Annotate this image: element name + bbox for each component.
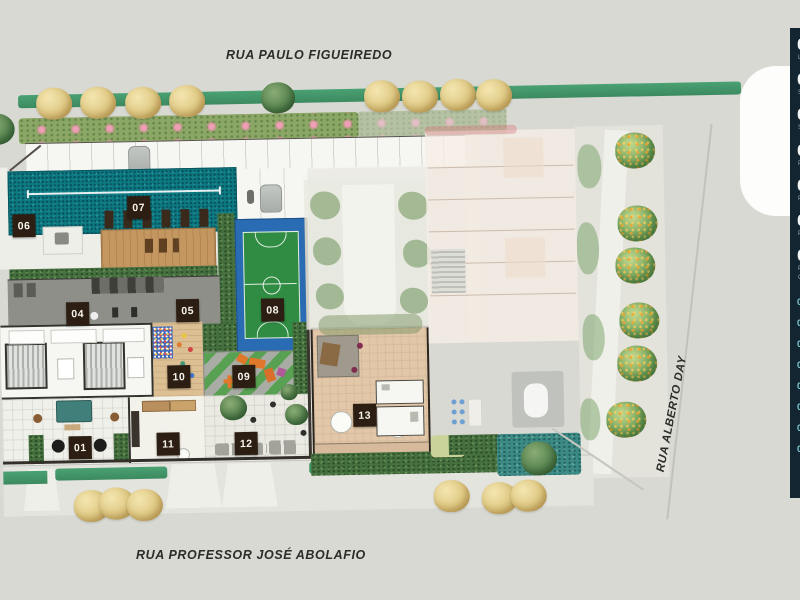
marker-08: 08 [261, 298, 284, 321]
shrub-icon [300, 430, 306, 436]
marker-label: 12 [240, 437, 253, 449]
faded-flower-strip [425, 125, 517, 136]
blue-chairs [450, 397, 468, 427]
fixture [382, 384, 390, 390]
toy-icon [188, 347, 193, 352]
marker-11: 11 [157, 432, 180, 455]
tree-icon [402, 80, 439, 113]
marker-label: 07 [132, 201, 145, 213]
tree-icon [125, 87, 162, 120]
armchair-icon [110, 412, 119, 421]
lounge-chairs [104, 209, 210, 229]
marker-label: 08 [266, 304, 279, 316]
marker-13: 13 [353, 403, 376, 426]
tree-icon [510, 479, 547, 512]
palm-icon [310, 191, 341, 220]
faded-tower-plan [425, 129, 579, 344]
tower-room [503, 137, 544, 178]
tree-icon [281, 384, 298, 400]
toy-icon [182, 333, 187, 338]
tower-room [505, 237, 546, 278]
tree-icon [169, 85, 206, 118]
pool-lane-tick [27, 190, 29, 198]
armchair-icon [33, 414, 42, 423]
ball-pit [152, 326, 173, 358]
tree-icon [127, 489, 164, 522]
marker-01: 01 [69, 436, 92, 459]
tree-icon [285, 404, 308, 425]
apartment-room [9, 330, 45, 345]
driveway-ramp [165, 463, 222, 508]
planting-bed [202, 323, 237, 352]
bed-icon [57, 358, 74, 379]
driveway-ramp [221, 462, 278, 507]
tree-icon [364, 80, 401, 113]
tree-icon [0, 113, 15, 145]
toy-icon [177, 342, 182, 347]
palm-icon [400, 287, 428, 314]
palm-icon [398, 191, 429, 220]
car-icon [260, 184, 283, 212]
apartment-room [51, 329, 97, 344]
shrub-icon [270, 401, 276, 407]
marker-label: 13 [358, 409, 371, 421]
planter [29, 435, 45, 464]
bush-icon [318, 314, 422, 336]
marker-10: 10 [167, 365, 190, 388]
party-sofa [319, 342, 340, 367]
tree-icon [440, 79, 477, 112]
tree-icon [261, 82, 296, 114]
scooter-icon [247, 190, 254, 204]
wine-decor [357, 343, 363, 349]
marker-04: 04 [66, 302, 89, 325]
marker-12: 12 [235, 432, 258, 455]
marker-06: 06 [12, 214, 35, 237]
legend-sidebar: 0 L 0 S 0 S 0 P 0 P 0 P 0 P C 0 0 [790, 28, 800, 498]
restroom [376, 380, 424, 405]
faded-table [468, 398, 483, 426]
tree-icon [80, 86, 117, 119]
marker-07: 07 [127, 196, 150, 219]
marker-label: 01 [74, 442, 87, 454]
garden-hedge [449, 434, 499, 455]
pool-lane-tick [219, 186, 221, 194]
site-plan-canvas: 06 07 04 05 08 10 09 01 11 12 13 RUA PAU… [0, 0, 800, 600]
faded-tub [524, 383, 549, 417]
bush-icon [521, 441, 558, 476]
marker-05: 05 [176, 299, 199, 322]
marker-label: 11 [162, 438, 174, 450]
marker-label: 04 [71, 308, 84, 320]
street-label-bottom: RUA PROFESSOR JOSÉ ABOLAFIO [136, 548, 366, 562]
bar-shelf [142, 400, 170, 412]
elevator-core [83, 341, 126, 390]
street-label-top: RUA PAULO FIGUEIREDO [226, 48, 392, 62]
bench-row [269, 440, 297, 455]
street-curb-line [666, 124, 712, 520]
planter [114, 433, 130, 462]
elevator-core [5, 343, 48, 390]
gym-equipment [112, 307, 118, 317]
tree-icon [220, 395, 247, 421]
fixture [410, 412, 418, 422]
outdoor-table [55, 232, 69, 244]
bottom-verge-strip [55, 467, 167, 481]
bar-counter [131, 411, 140, 447]
shrub-icon [250, 417, 256, 423]
bed-icon [127, 357, 144, 378]
lobby-sofa [56, 400, 92, 423]
marker-label: 05 [181, 304, 194, 316]
palm-icon [316, 283, 344, 310]
gym-lockers [92, 277, 164, 294]
marker-label: 06 [18, 220, 31, 232]
palm-icon [313, 237, 342, 266]
deck-furniture [145, 238, 179, 253]
apartment-room [102, 328, 144, 343]
tree-icon [476, 79, 513, 112]
coffee-table [64, 424, 80, 430]
marker-09: 09 [232, 365, 255, 388]
faded-path [342, 184, 397, 325]
play-structure [227, 375, 231, 388]
tree-icon [36, 87, 73, 120]
gym-equipment [131, 307, 137, 317]
gym-equipment [14, 283, 23, 297]
tower-core [431, 249, 466, 294]
marker-label: 10 [172, 371, 185, 383]
wine-decor [351, 367, 357, 373]
site-plan: 06 07 04 05 08 10 09 01 11 12 13 [0, 0, 800, 600]
cabinet [170, 400, 196, 411]
marker-label: 09 [237, 370, 250, 382]
bottom-verge-strip [3, 471, 47, 485]
gym-equipment [27, 283, 36, 297]
